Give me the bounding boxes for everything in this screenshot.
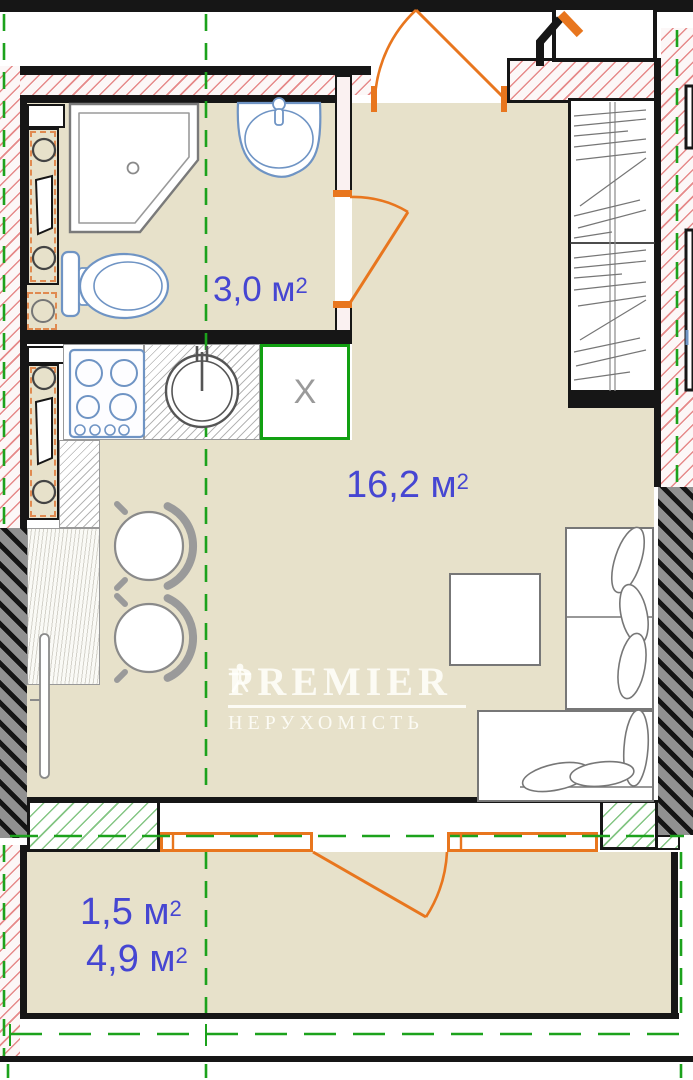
kitchen-sink-icon — [166, 346, 238, 427]
toilet-icon — [62, 252, 168, 318]
shower-tray-icon — [70, 104, 198, 232]
bathroom-door — [333, 190, 408, 308]
entrance-door — [371, 10, 507, 112]
radiator-icon — [30, 634, 49, 778]
bathroom-sink-icon — [238, 98, 321, 177]
balcony-full-area-label: 4,9 м2 — [86, 940, 188, 978]
chair-icon-2 — [115, 596, 193, 680]
bathroom-area-label: 3,0 м2 — [213, 272, 308, 307]
chair-icon-1 — [115, 504, 193, 588]
balcony-reduced-area-label: 1,5 м2 — [80, 893, 182, 931]
stove-icon — [70, 350, 144, 437]
shaft-details — [32, 139, 55, 503]
sofa-details — [520, 524, 653, 797]
wardrobe-details — [570, 102, 655, 391]
neighbor-wall-fragments — [686, 86, 693, 390]
balcony-door — [173, 834, 461, 917]
neighbor-door — [540, 14, 580, 66]
living-room-area-label: 16,2 м2 — [346, 466, 469, 504]
floor-plan-canvas: X PREMIER НЕРУХОМІСТЬ — [0, 0, 693, 1080]
